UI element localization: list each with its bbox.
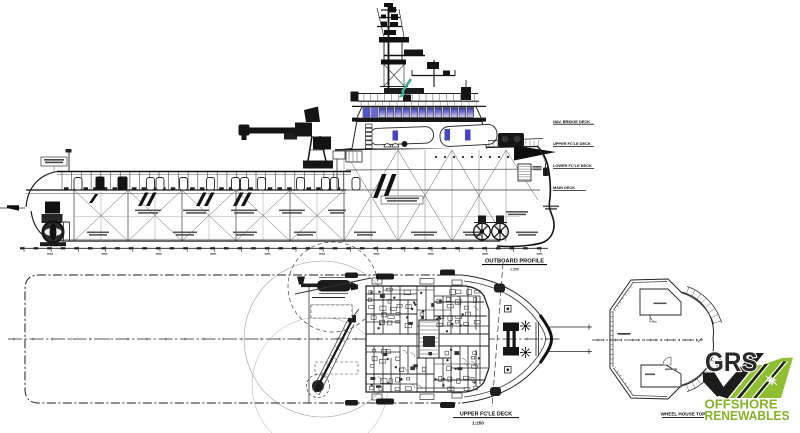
- svg-text:GRS: GRS: [705, 347, 758, 377]
- svg-text:MAIN DECK: MAIN DECK: [553, 185, 575, 190]
- svg-text:UPPER FC'LE DECK: UPPER FC'LE DECK: [460, 412, 512, 418]
- svg-text:OUTBOARD PROFILE: OUTBOARD PROFILE: [485, 259, 544, 265]
- svg-text:LOWER FC'LE DECK: LOWER FC'LE DECK: [553, 163, 592, 168]
- svg-text:UPPER FC'LE DECK: UPPER FC'LE DECK: [553, 141, 591, 146]
- svg-text:NAV. BRIDGE DECK: NAV. BRIDGE DECK: [553, 119, 590, 124]
- svg-text:1:250: 1:250: [472, 421, 484, 426]
- svg-text:WHEEL HOUSE TOP: WHEEL HOUSE TOP: [661, 412, 706, 417]
- svg-text:1:250: 1:250: [510, 268, 519, 272]
- svg-text:RENEWABLES: RENEWABLES: [705, 408, 790, 423]
